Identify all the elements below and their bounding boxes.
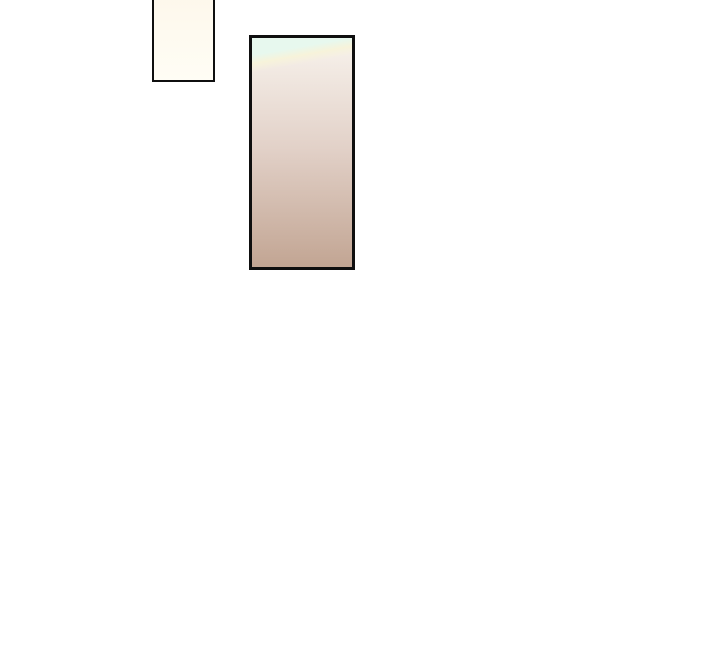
page-background <box>0 0 720 666</box>
comic-panel-large <box>249 35 355 270</box>
comic-panel-small <box>152 0 215 82</box>
